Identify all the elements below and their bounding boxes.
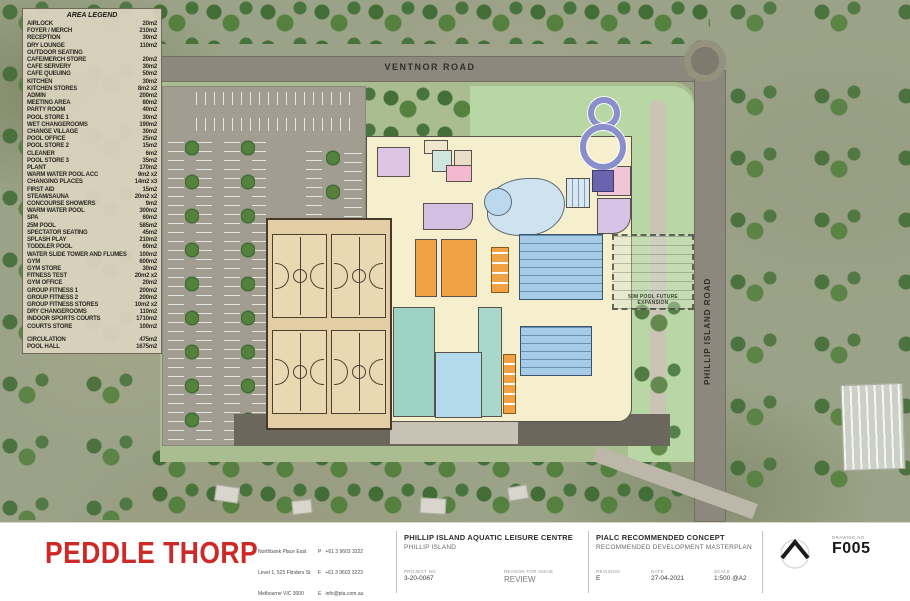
date-value: 27-04-2021 <box>651 575 684 582</box>
legend-item-area: 15m2 <box>142 187 157 194</box>
legend-item-name: DRY LOUNGE <box>27 43 65 50</box>
legend-item-area: 585m2 <box>139 223 157 230</box>
legend-item-area: 14m2 x3 <box>135 179 157 186</box>
legend-row: PARTY ROOM 40m2 <box>23 107 161 114</box>
scale-field: SCALE 1:500 @A2 <box>714 569 747 582</box>
legend-item-name: SPA <box>27 215 38 222</box>
legend-row: GYM STORE 30m2 <box>23 266 161 273</box>
legend-row: SPECTATOR SEATING 45m2 <box>23 230 161 237</box>
project-subtitle: PHILLIP ISLAND <box>404 544 584 551</box>
legend-item-name: PLANT <box>27 165 46 172</box>
legend-item-area: 30m2 <box>142 79 157 86</box>
legend-item-name: KITCHEN <box>27 79 52 86</box>
concept-title: PIALC RECOMMENDED CONCEPT <box>596 533 764 542</box>
project-title: PHILLIP ISLAND AQUATIC LEISURE CENTRE <box>404 533 584 542</box>
north-arrow-icon <box>772 533 818 576</box>
legend-item-area: 110m2 <box>140 309 157 316</box>
legend-item-area: 475m2 <box>139 337 157 344</box>
area-legend: AREA LEGEND AIRLOCK 20m2 FOYER / MERCH 2… <box>22 8 162 354</box>
project-no-value: 3-20-0067 <box>404 575 436 582</box>
legend-row: KITCHEN 30m2 <box>23 79 161 86</box>
legend-item-name: GYM <box>27 259 40 266</box>
legend-item-name: MEETING AREA <box>27 100 70 107</box>
legend-row: WATER SLIDE TOWER AND FLUMES 100m2 <box>23 252 161 259</box>
legend-item-name: GROUP FITNESS 1 <box>27 288 78 295</box>
drawing-no-value: F005 <box>832 540 870 558</box>
legend-row: FOYER / MERCH 210m2 <box>23 28 161 35</box>
warm-water-pool <box>520 326 592 376</box>
project-block: PHILLIP ISLAND AQUATIC LEISURE CENTRE PH… <box>404 533 584 551</box>
legend-row: POOL OFFICE 25m2 <box>23 136 161 143</box>
legend-item-name: PARTY ROOM <box>27 107 65 114</box>
legend-title: AREA LEGEND <box>23 11 161 21</box>
legend-item-area: 200m2 <box>139 295 157 302</box>
legend-item-area: 30m2 <box>142 115 157 122</box>
date-field: DATE 27-04-2021 <box>651 569 684 582</box>
legend-row: INDOOR SPORTS COURTS 1710m2 <box>23 316 161 323</box>
legend-item-name: GROUP FITNESS STORES <box>27 302 98 309</box>
legend-row: GROUP FITNESS 2 200m2 <box>23 295 161 302</box>
water-slide-tower <box>592 170 614 192</box>
legend-row: CAFE SERVERY 30m2 <box>23 64 161 71</box>
legend-item-name: TODDLER POOL <box>27 244 72 251</box>
address-line: Level 1, 525 Flinders St <box>258 570 311 577</box>
legend-item-name: CHANGE VILLAGE <box>27 129 78 136</box>
legend-row: 25M POOL 585m2 <box>23 223 161 230</box>
revision-value: E <box>596 575 620 582</box>
slide-splashdown <box>566 178 590 208</box>
legend-item-name: POOL STORE 3 <box>27 158 69 165</box>
legend-row: MEETING AREA 80m2 <box>23 100 161 107</box>
legend-row: CLEANER 6m2 <box>23 151 161 158</box>
firm-logo: PEDDLE THORP <box>45 536 258 571</box>
parking-stalls-col-3 <box>224 140 240 440</box>
ventnor-road-label: VENTNOR ROAD <box>300 62 560 72</box>
context-house <box>420 497 447 514</box>
legend-item-area: 10m2 x2 <box>135 302 157 309</box>
firm-address: Northbank Place East Level 1, 525 Flinde… <box>258 535 311 601</box>
future-pool-label: 50M POOL FUTURE EXPANSION <box>614 294 692 306</box>
divider <box>588 531 589 593</box>
divider <box>762 531 763 593</box>
address-line: Northbank Place East <box>258 549 311 556</box>
legend-row: CHANGING PLACES 14m2 x3 <box>23 179 161 186</box>
legend-item-area: 60m2 <box>142 215 157 222</box>
legend-item-name: WARM WATER POOL ACC <box>27 172 98 179</box>
legend-row: ADMIN 200m2 <box>23 93 161 100</box>
contact-line: E info@pta.com.au <box>318 591 364 598</box>
legend-row: CONCOURSE SHOWERS 9m2 <box>23 201 161 208</box>
legend-item-area: 100m2 <box>139 324 157 331</box>
legend-item-name: AIRLOCK <box>27 21 53 28</box>
legend-item-name: POOL OFFICE <box>27 136 65 143</box>
legend-item-area: 8m2 x2 <box>138 86 157 93</box>
legend-row: DRY CHANGEROOMS 110m2 <box>23 309 161 316</box>
legend-item-name: GYM OFFICE <box>27 280 62 287</box>
legend-item-area: 210m2 <box>139 237 157 244</box>
room-gym <box>435 352 482 418</box>
legend-item-area: 30m2 <box>142 35 157 42</box>
legend-item-area: 30m2 <box>142 266 157 273</box>
legend-item-name: FITNESS TEST <box>27 273 67 280</box>
parking-stalls-row-2 <box>196 118 356 131</box>
legend-row: KITCHEN STORES 8m2 x2 <box>23 86 161 93</box>
date-label: DATE <box>651 569 684 574</box>
phillip-island-road-label: PHILLIP ISLAND ROAD <box>703 225 712 385</box>
legend-row: AIRLOCK 20m2 <box>23 21 161 28</box>
room-group-fitness-2 <box>441 239 477 297</box>
legend-item-area: 190m2 <box>139 122 157 129</box>
water-slide-loop-bottom <box>580 124 626 170</box>
legend-item-area: 100m2 <box>139 252 157 259</box>
legend-row: WET CHANGEROOMS 190m2 <box>23 122 161 129</box>
legend-item-name: KITCHEN STORES <box>27 86 77 93</box>
legend-item-name: CAFE/MERCH STORE <box>27 57 86 64</box>
parking-stalls-col-1 <box>168 140 184 440</box>
legend-item-area: 210m2 <box>139 28 157 35</box>
legend-row: POOL STORE 3 35m2 <box>23 158 161 165</box>
legend-row: TODDLER POOL 60m2 <box>23 244 161 251</box>
scale-value: 1:500 @A2 <box>714 575 747 582</box>
court-row-north <box>272 234 386 318</box>
legend-item-area: 20m2 x2 <box>135 194 157 201</box>
legend-item-area: 30m2 <box>142 64 157 71</box>
legend-row: FITNESS TEST 20m2 x2 <box>23 273 161 280</box>
parking-trees-1 <box>185 140 199 440</box>
legend-row: CHANGE VILLAGE 30m2 <box>23 129 161 136</box>
legend-item-area: 40m2 <box>142 107 157 114</box>
legend-item-name: WET CHANGEROOMS <box>27 122 88 129</box>
context-shed <box>841 383 906 471</box>
legend-row: GROUP FITNESS 1 200m2 <box>23 288 161 295</box>
legend-row: OUTDOOR SEATING <box>23 50 161 57</box>
toddler-pool <box>484 188 512 216</box>
legend-item-name: COURTS STORE <box>27 324 72 331</box>
indoor-sports-hall <box>266 218 392 430</box>
legend-item-name: SPLASH PLAY <box>27 237 66 244</box>
parking-stalls-row-1 <box>196 92 356 105</box>
legend-item-area: 300m2 <box>139 208 157 215</box>
legend-item-name: RECEPTION <box>27 35 60 42</box>
legend-row: CAFE/MERCH STORE 20m2 <box>23 57 161 64</box>
basketball-court <box>272 330 327 414</box>
revision-field: REVISION E <box>596 569 620 582</box>
legend-row: GYM 600m2 <box>23 259 161 266</box>
legend-item-area: 25m2 <box>142 136 157 143</box>
legend-row: POOL STORE 2 15m2 <box>23 143 161 150</box>
legend-item-name: ADMIN <box>27 93 46 100</box>
title-block: PEDDLE THORP Northbank Place East Level … <box>0 522 910 601</box>
masterplan-sheet: VENTNOR ROAD PHILLIP ISLAND ROAD <box>0 0 910 601</box>
legend-item-area: 200m2 <box>139 93 157 100</box>
legend-item-area: 20m2 <box>142 57 157 64</box>
legend-item-area: 9m2 <box>146 201 157 208</box>
legend-item-area: 45m2 <box>142 230 157 237</box>
legend-item-area: 15m2 <box>142 143 157 150</box>
contact-line: F +61 3 9603 3223 <box>318 570 364 577</box>
legend-row: RECEPTION 30m2 <box>23 35 161 42</box>
legend-item-area: 60m2 <box>142 244 157 251</box>
legend-row: GYM OFFICE 20m2 <box>23 280 161 287</box>
legend-item-name: GYM STORE <box>27 266 61 273</box>
legend-row: WARM WATER POOL 300m2 <box>23 208 161 215</box>
trees-top-right <box>728 0 910 50</box>
legend-item-name: DRY CHANGEROOMS <box>27 309 87 316</box>
legend-row: FIRST AID 15m2 <box>23 187 161 194</box>
legend-item-name: INDOOR SPORTS COURTS <box>27 316 100 323</box>
basketball-court <box>331 234 386 318</box>
legend-item-area: 20m2 <box>142 280 157 287</box>
address-line: Melbourne VIC 3000 <box>258 591 311 598</box>
reason-label: REASON FOR ISSUE <box>504 569 553 574</box>
scale-label: SCALE <box>714 569 747 574</box>
legend-item-name: WATER SLIDE TOWER AND FLUMES <box>27 252 127 259</box>
contact-line: P +61 3 9603 3222 <box>318 549 364 556</box>
legend-item-name: POOL HALL <box>27 344 60 351</box>
trees-top-band <box>150 0 710 44</box>
legend-item-name: WARM WATER POOL <box>27 208 85 215</box>
parking-trees-2 <box>241 140 255 440</box>
legend-item-name: FOYER / MERCH <box>27 28 72 35</box>
legend-item-name: POOL STORE 2 <box>27 143 69 150</box>
legend-item-name: CAFE QUEUING <box>27 71 71 78</box>
room-admin <box>377 147 410 177</box>
concept-subtitle: RECOMMENDED DEVELOPMENT MASTERPLAN <box>596 544 764 551</box>
project-no-field: PROJECT NO 3-20-0067 <box>404 569 436 582</box>
legend-item-area: 600m2 <box>139 259 157 266</box>
firm-contact: P +61 3 9603 3222 F +61 3 9603 3223 E in… <box>318 535 364 601</box>
legend-items: AIRLOCK 20m2 FOYER / MERCH 210m2 RECEPTI… <box>23 21 161 331</box>
legend-item-name: POOL STORE 1 <box>27 115 69 122</box>
pool-25m <box>519 234 603 300</box>
legend-item-area: 110m2 <box>140 43 157 50</box>
legend-row: STEAM/SAUNA 20m2 x2 <box>23 194 161 201</box>
legend-item-area: 35m2 <box>142 158 157 165</box>
legend-item-name: CIRCULATION <box>27 337 66 344</box>
legend-item-name: CHANGING PLACES <box>27 179 83 186</box>
legend-item-name: CAFE SERVERY <box>27 64 71 71</box>
legend-item-area: 170m2 <box>139 165 157 172</box>
divider <box>396 531 397 593</box>
basketball-court <box>272 234 327 318</box>
legend-row: COURTS STORE 100m2 <box>23 324 161 331</box>
legend-row: GROUP FITNESS STORES 10m2 x2 <box>23 302 161 309</box>
legend-item-name: CONCOURSE SHOWERS <box>27 201 95 208</box>
revision-label: REVISION <box>596 569 620 574</box>
legend-item-name: 25M POOL <box>27 223 56 230</box>
legend-item-area: 30m2 <box>142 129 157 136</box>
legend-item-name: FIRST AID <box>27 187 54 194</box>
legend-item-area: 20m2 <box>142 21 157 28</box>
roundabout <box>684 40 726 82</box>
legend-footer-items: CIRCULATION 475m2 POOL HALL 1675m2 <box>23 337 161 351</box>
legend-row: POOL HALL 1675m2 <box>23 344 161 351</box>
room-group-fitness-1 <box>415 239 437 297</box>
spectator-seating <box>491 247 509 293</box>
legend-item-name: SPECTATOR SEATING <box>27 230 88 237</box>
legend-item-name: CLEANER <box>27 151 55 158</box>
legend-item-name: OUTDOOR SEATING <box>27 50 83 57</box>
legend-item-area: 1710m2 <box>136 316 157 323</box>
court-row-south <box>272 330 386 414</box>
context-house <box>507 484 529 501</box>
legend-item-area: 1675m2 <box>136 344 157 351</box>
legend-item-area: 9m2 x2 <box>138 172 157 179</box>
legend-row: CAFE QUEUING 50m2 <box>23 71 161 78</box>
legend-row: SPA 60m2 <box>23 215 161 222</box>
legend-row: WARM WATER POOL ACC 9m2 x2 <box>23 172 161 179</box>
legend-row: PLANT 170m2 <box>23 165 161 172</box>
legend-item-area: 50m2 <box>142 71 157 78</box>
legend-item-area: 20m2 x2 <box>135 273 157 280</box>
context-house <box>291 499 312 515</box>
room-gym-annex <box>393 307 435 417</box>
project-no-label: PROJECT NO <box>404 569 436 574</box>
seating-south <box>503 354 516 414</box>
legend-item-name: STEAM/SAUNA <box>27 194 69 201</box>
legend-item-area: 80m2 <box>142 100 157 107</box>
basketball-court <box>331 330 386 414</box>
context-house <box>214 484 240 503</box>
drawing-field: DRAWING NO F005 <box>832 535 870 558</box>
reason-field: REASON FOR ISSUE REVIEW <box>504 569 553 584</box>
legend-item-name: GROUP FITNESS 2 <box>27 295 78 302</box>
room-wet-changerooms <box>446 165 472 182</box>
future-50m-pool: 50M POOL FUTURE EXPANSION <box>612 234 694 310</box>
legend-row: CIRCULATION 475m2 <box>23 337 161 344</box>
legend-row: SPLASH PLAY 210m2 <box>23 237 161 244</box>
concept-block: PIALC RECOMMENDED CONCEPT RECOMMENDED DE… <box>596 533 764 551</box>
legend-row: DRY LOUNGE 110m2 <box>23 43 161 50</box>
reason-value: REVIEW <box>504 575 553 584</box>
room-meeting-area <box>423 203 473 230</box>
legend-row: POOL STORE 1 30m2 <box>23 115 161 122</box>
legend-item-area: 6m2 <box>146 151 157 158</box>
legend-item-area: 200m2 <box>139 288 157 295</box>
